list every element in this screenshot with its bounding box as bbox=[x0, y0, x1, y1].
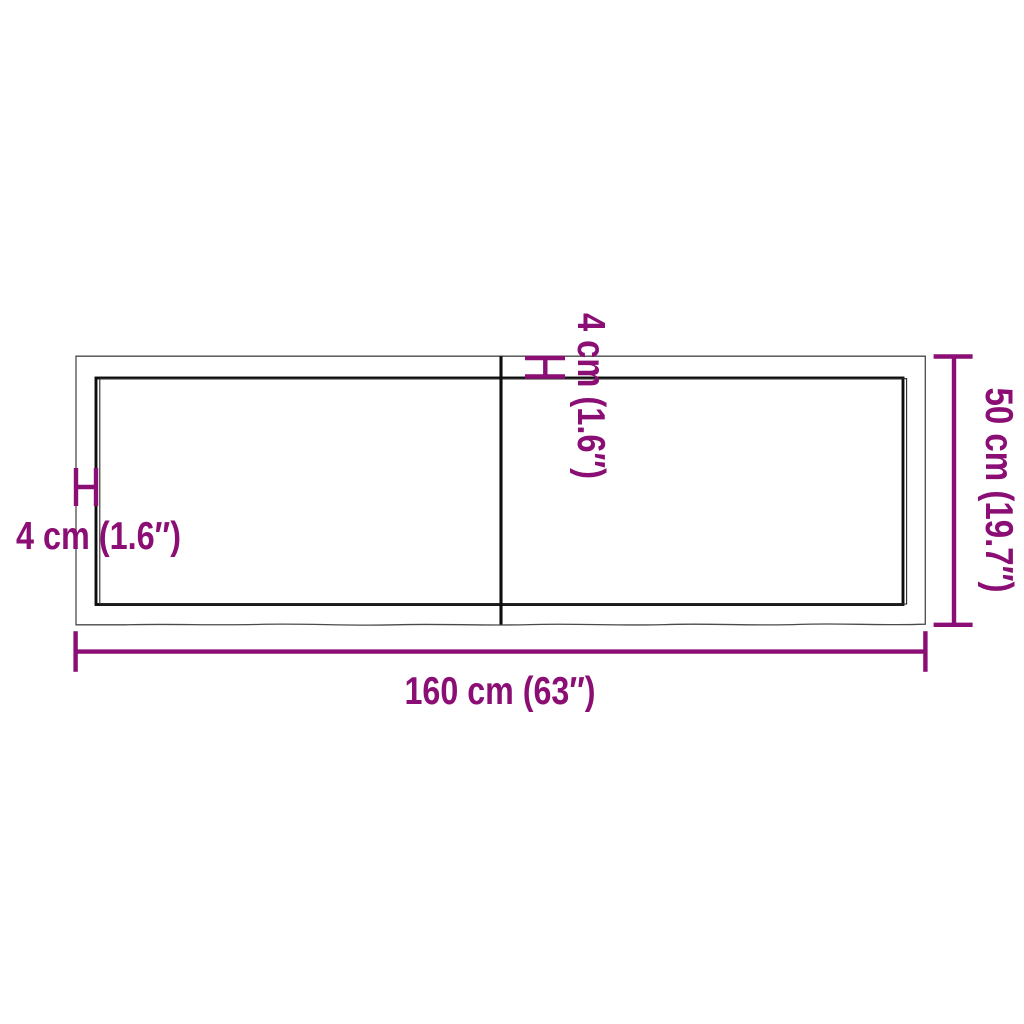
svg-text:4 cm (1.6″): 4 cm (1.6″) bbox=[16, 515, 181, 558]
svg-text:50 cm (19.7″): 50 cm (19.7″) bbox=[977, 388, 1020, 593]
svg-text:160 cm (63″): 160 cm (63″) bbox=[405, 670, 596, 713]
svg-text:4 cm (1.6″): 4 cm (1.6″) bbox=[569, 313, 612, 479]
